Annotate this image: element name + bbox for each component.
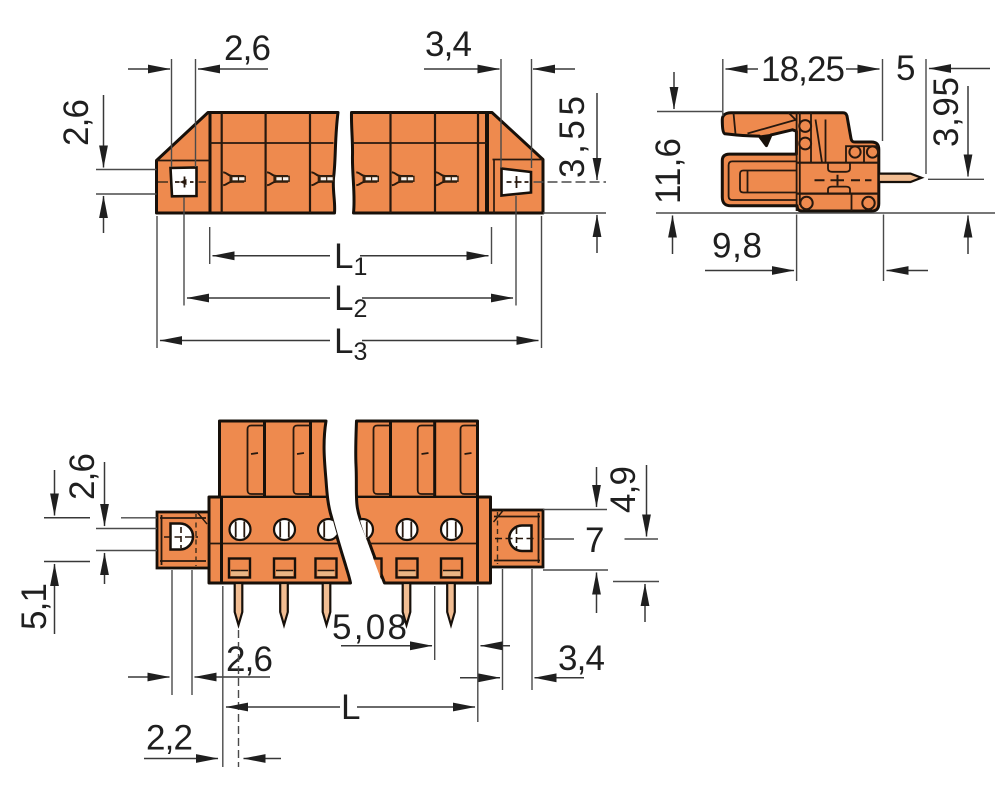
svg-text:4,9: 4,9 <box>604 466 643 513</box>
svg-text:18,25: 18,25 <box>761 50 845 89</box>
svg-text:5: 5 <box>896 49 915 88</box>
svg-text:11,6: 11,6 <box>649 138 688 204</box>
svg-text:5,1: 5,1 <box>15 583 54 630</box>
svg-text:9,8: 9,8 <box>712 227 762 266</box>
svg-text:2,6: 2,6 <box>226 640 273 679</box>
svg-text:3,95: 3,95 <box>927 77 966 147</box>
svg-text:2,6: 2,6 <box>224 29 271 68</box>
svg-text:2,2: 2,2 <box>146 719 193 758</box>
svg-text:2,6: 2,6 <box>63 453 102 500</box>
svg-text:3,4: 3,4 <box>425 25 472 64</box>
svg-text:L: L <box>341 688 360 727</box>
svg-text:7: 7 <box>585 521 604 560</box>
svg-text:3,4: 3,4 <box>558 639 605 678</box>
svg-text:3,55: 3,55 <box>553 96 592 178</box>
svg-text:2,6: 2,6 <box>57 99 96 146</box>
svg-text:5,08: 5,08 <box>332 608 407 647</box>
